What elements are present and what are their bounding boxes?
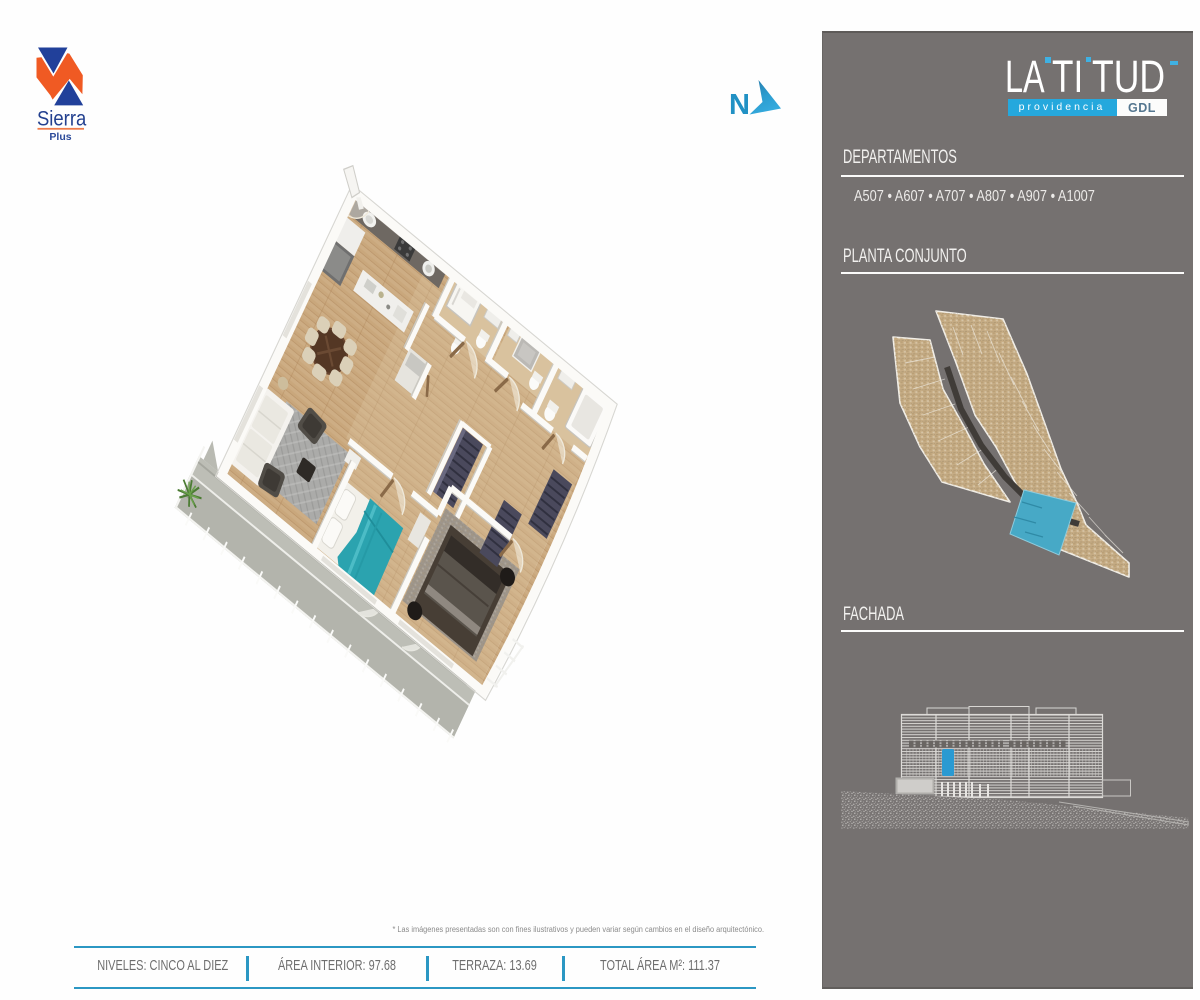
- svg-text:Sierra: Sierra: [37, 107, 86, 130]
- svg-text:N: N: [729, 89, 750, 121]
- svg-text:Plus: Plus: [49, 131, 71, 143]
